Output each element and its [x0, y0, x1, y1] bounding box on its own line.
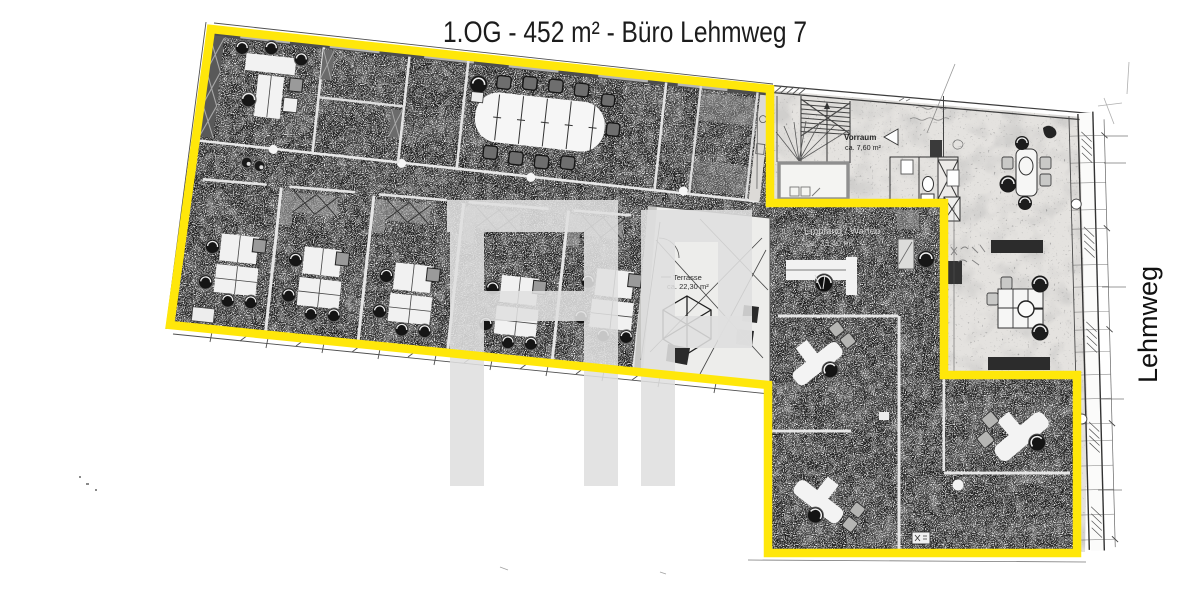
svg-text:ca. 7,60 m²: ca. 7,60 m² — [845, 143, 882, 152]
svg-text:ca. 33,40 m²: ca. 33,40 m² — [806, 238, 853, 248]
svg-text:Empfang / Warten: Empfang / Warten — [804, 226, 880, 237]
svg-text:Terrasse: Terrasse — [673, 273, 702, 282]
svg-text:Lehmweg: Lehmweg — [1133, 266, 1163, 383]
svg-text:ca. 12,30 m²: ca. 12,30 m² — [928, 418, 935, 455]
svg-text:Flur: Flur — [418, 173, 432, 183]
svg-text:Flur: Flur — [919, 429, 926, 442]
svg-text:1.OG - 452 m² - Büro Lehmweg 7: 1.OG - 452 m² - Büro Lehmweg 7 — [443, 16, 807, 49]
svg-text:Vorraum: Vorraum — [844, 133, 876, 142]
